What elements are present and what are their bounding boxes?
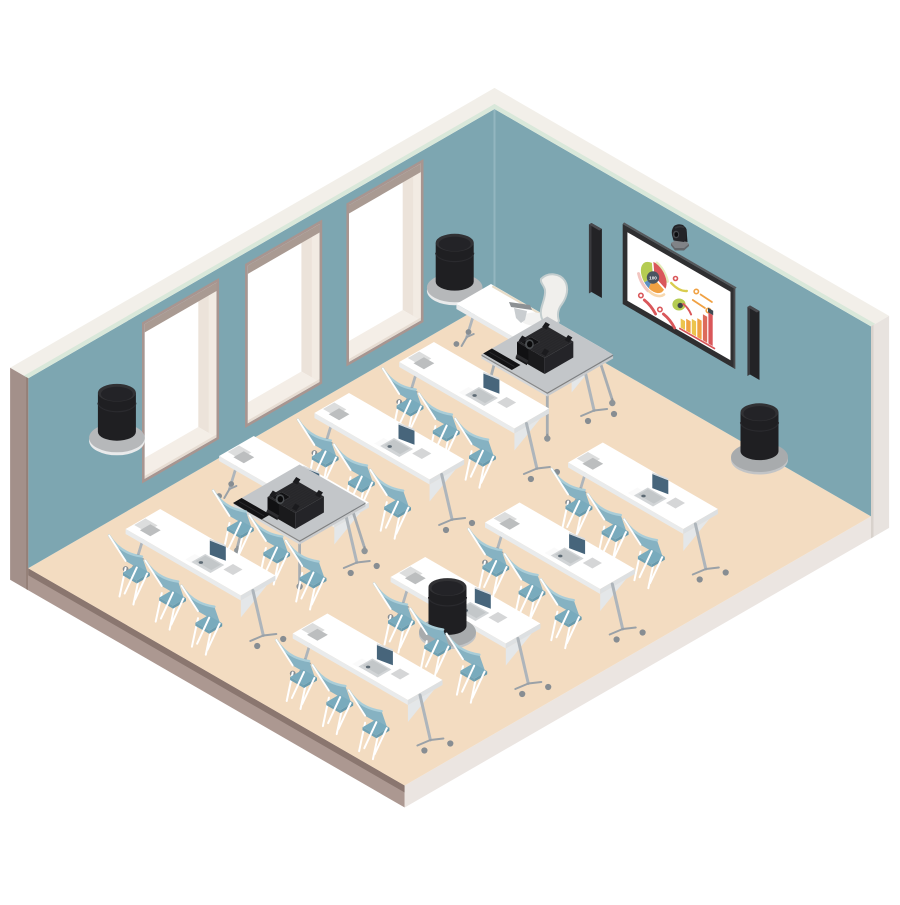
svg-text:100: 100 (649, 275, 657, 280)
